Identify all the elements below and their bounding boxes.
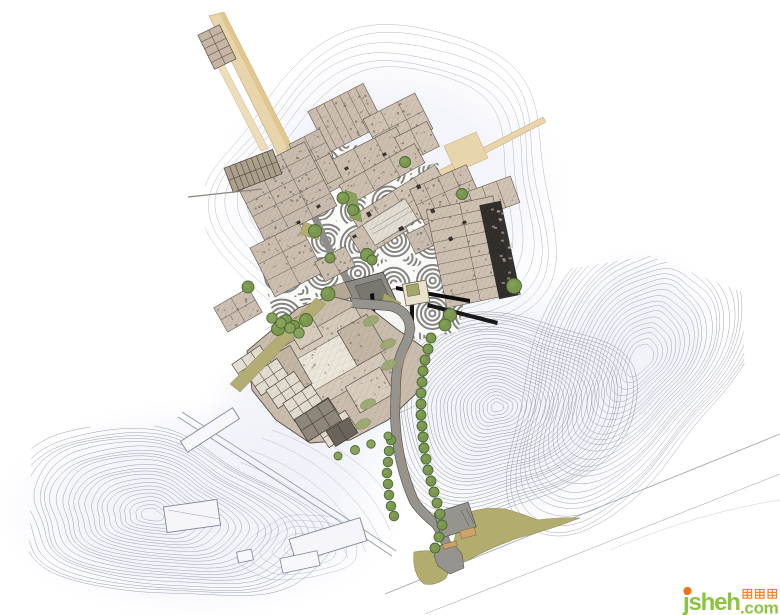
svg-text:.com: .com (740, 599, 779, 615)
